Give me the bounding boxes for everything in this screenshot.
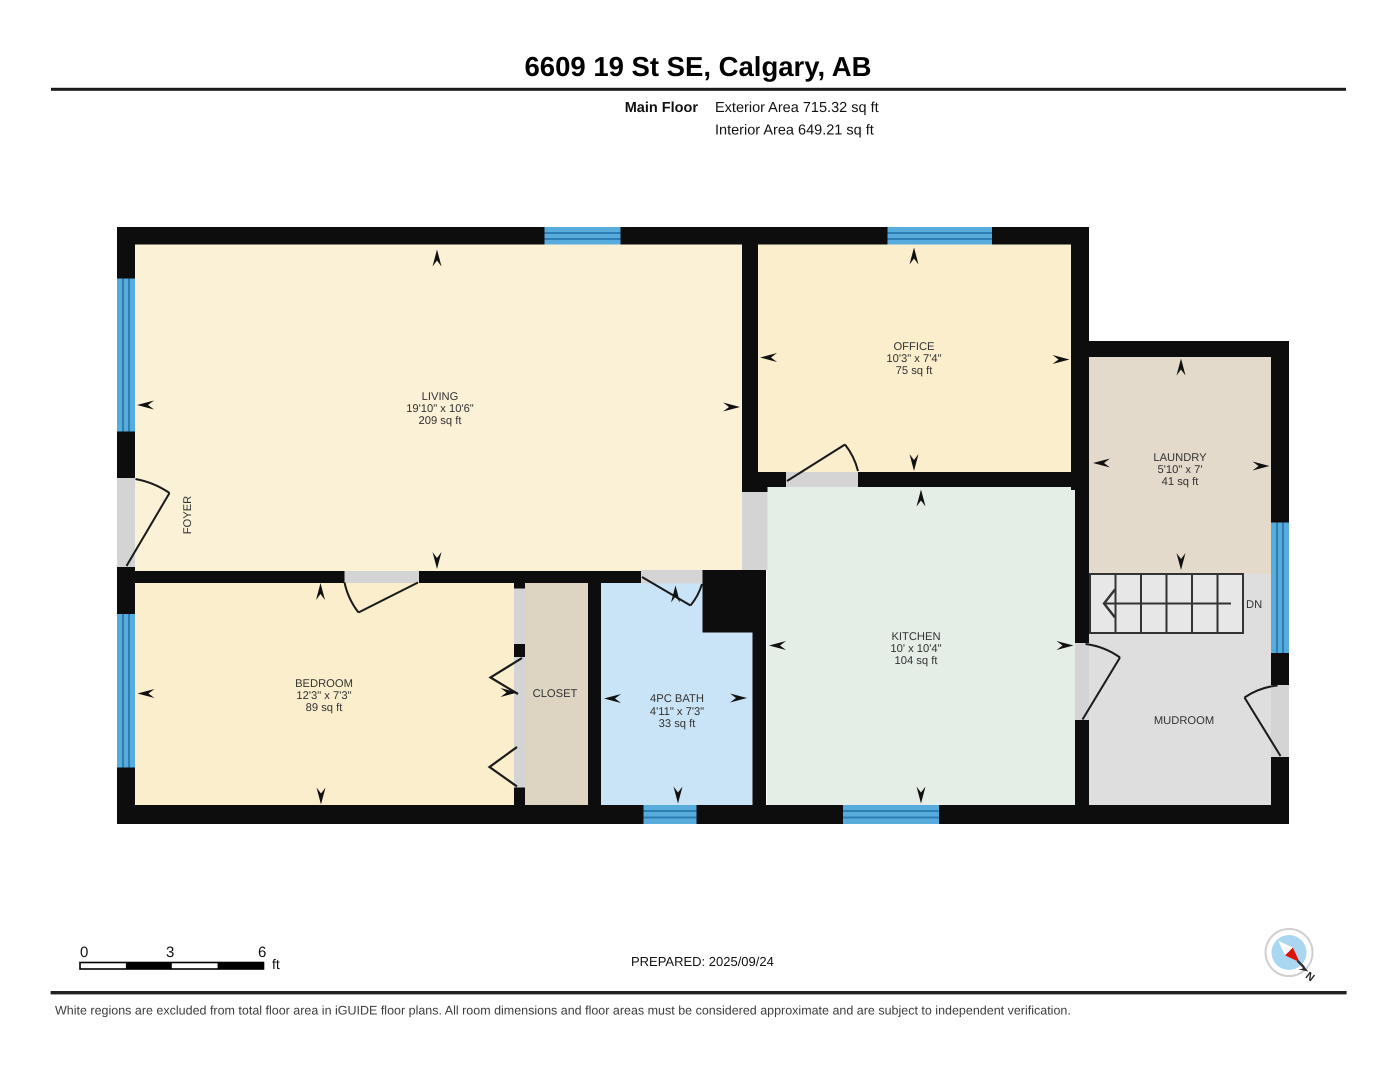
svg-text:N: N: [1303, 970, 1317, 984]
svg-text:KITCHEN: KITCHEN: [891, 631, 940, 643]
svg-text:LAUNDRY: LAUNDRY: [1153, 452, 1207, 464]
svg-text:89 sq ft: 89 sq ft: [306, 702, 344, 714]
svg-text:Main Floor: Main Floor: [625, 100, 699, 116]
svg-text:DN: DN: [1246, 599, 1262, 611]
svg-text:OFFICE: OFFICE: [893, 341, 934, 353]
svg-text:White regions are excluded fro: White regions are excluded from total fl…: [55, 1004, 1071, 1018]
svg-text:4'11" x 7'3": 4'11" x 7'3": [650, 706, 704, 718]
svg-text:75 sq ft: 75 sq ft: [896, 365, 934, 377]
svg-text:Interior Area 649.21 sq ft: Interior Area 649.21 sq ft: [715, 123, 874, 139]
svg-text:6: 6: [258, 944, 266, 961]
svg-text:10' x 10'4": 10' x 10'4": [890, 643, 941, 655]
svg-text:33 sq ft: 33 sq ft: [659, 718, 697, 730]
svg-text:LIVING: LIVING: [422, 391, 459, 403]
svg-text:CLOSET: CLOSET: [533, 688, 578, 700]
svg-text:19'10" x 10'6": 19'10" x 10'6": [406, 403, 474, 415]
svg-text:3: 3: [166, 944, 174, 961]
svg-text:209 sq ft: 209 sq ft: [419, 415, 463, 427]
svg-text:BEDROOM: BEDROOM: [295, 678, 353, 690]
svg-text:4PC BATH: 4PC BATH: [650, 693, 704, 705]
svg-text:PREPARED: 2025/09/24: PREPARED: 2025/09/24: [631, 954, 774, 969]
svg-text:41 sq ft: 41 sq ft: [1162, 476, 1200, 488]
svg-text:FOYER: FOYER: [182, 496, 194, 535]
svg-text:Exterior Area 715.32 sq ft: Exterior Area 715.32 sq ft: [715, 100, 879, 116]
svg-text:ft: ft: [272, 956, 280, 972]
svg-text:5'10" x 7': 5'10" x 7': [1158, 464, 1203, 476]
svg-text:104 sq ft: 104 sq ft: [895, 655, 939, 667]
svg-text:12'3" x 7'3": 12'3" x 7'3": [296, 690, 351, 702]
svg-text:10'3" x 7'4": 10'3" x 7'4": [886, 353, 941, 365]
svg-text:0: 0: [80, 944, 88, 961]
svg-text:6609 19 St SE, Calgary, AB: 6609 19 St SE, Calgary, AB: [525, 51, 872, 82]
svg-text:MUDROOM: MUDROOM: [1154, 715, 1214, 727]
